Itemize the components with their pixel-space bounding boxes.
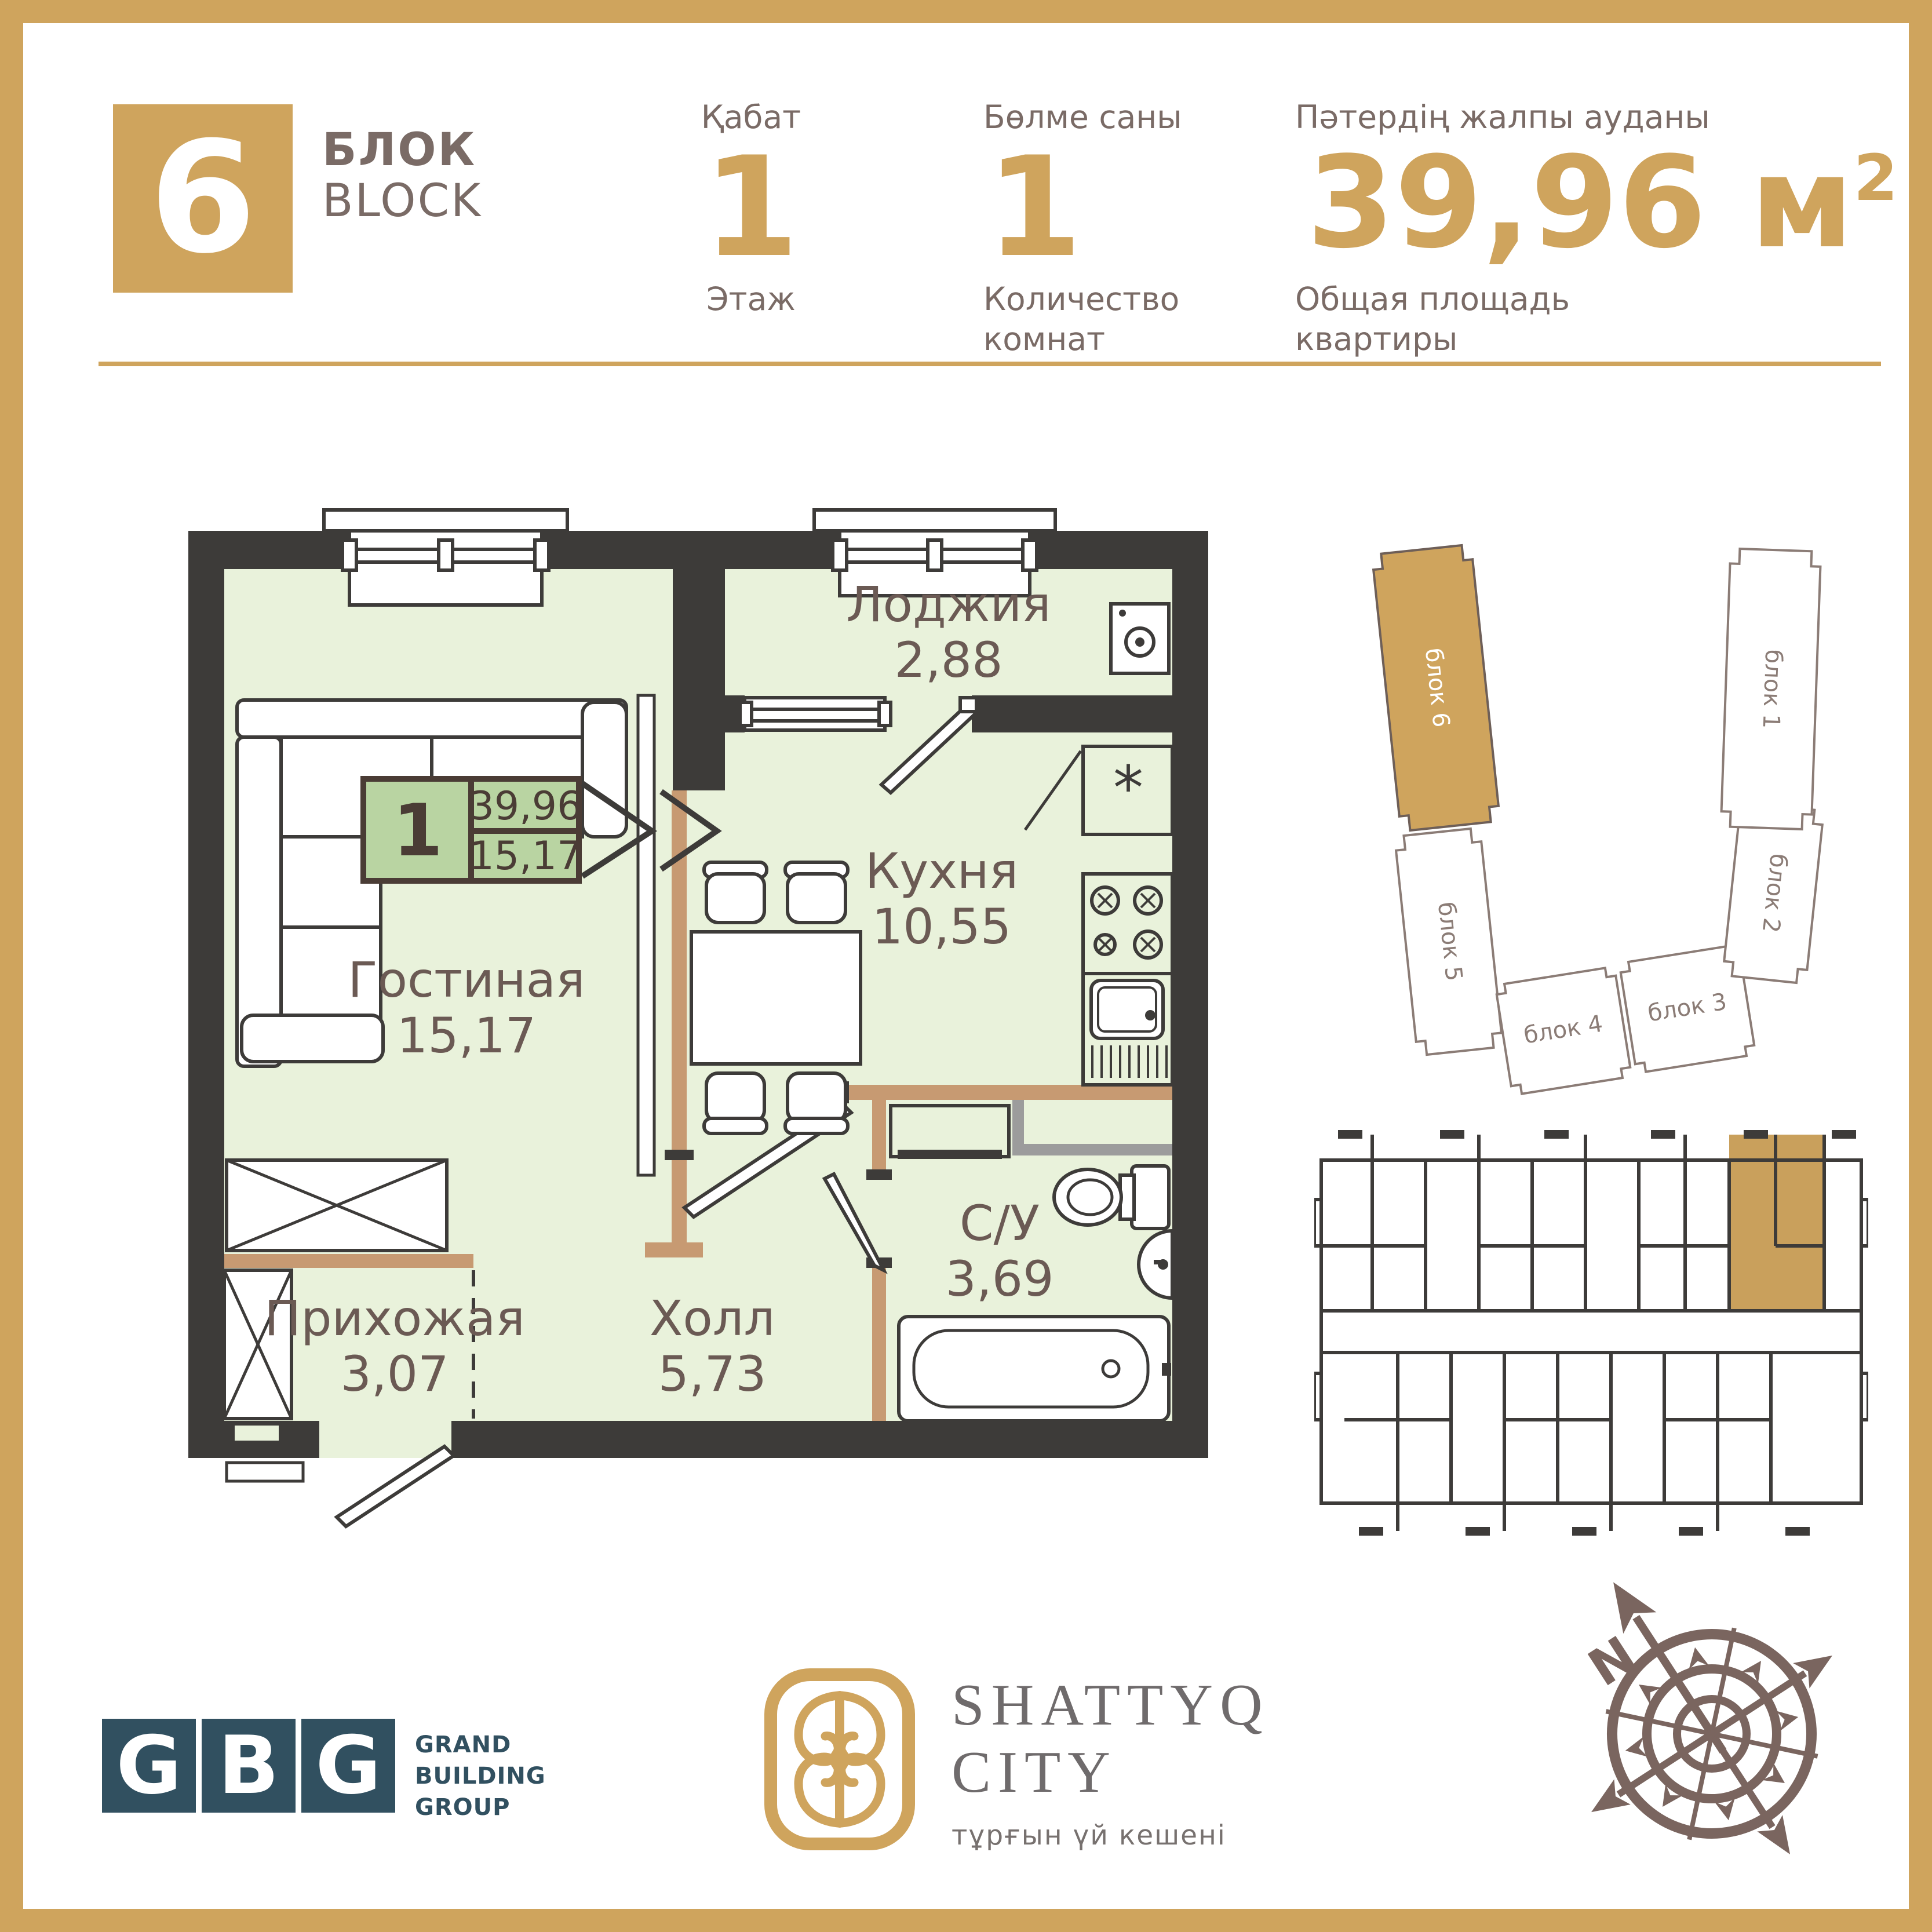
label-living-area: 15,17: [397, 1007, 536, 1064]
apartment-floorplan: *: [188, 505, 1208, 1560]
block-number: 6: [150, 122, 256, 275]
area-number: 39,96 м: [1307, 130, 1854, 276]
shattyq-title-1: SHATTYQ: [952, 1676, 1270, 1735]
siteplan-block-5: блок 5: [1395, 828, 1503, 1055]
area-value: 39,96 м2: [1307, 140, 1898, 267]
entrance-door-leaf: [337, 1446, 454, 1526]
svg-text:блок 1: блок 1: [1758, 649, 1787, 730]
entrance-threshold: [235, 1426, 279, 1441]
rooms-label-ru: Количество комнат: [983, 279, 1233, 359]
fridge-symbol: *: [1113, 753, 1143, 823]
entrance-step: [227, 1463, 303, 1481]
label-hallway: Прихожая: [264, 1290, 525, 1347]
compass-rose: N: [1559, 1530, 1860, 1889]
siteplan: блок 6 блок 5 блок 4 блок 3 блок 2 блок …: [1362, 524, 1895, 1110]
bath-cabinet: [891, 1106, 1009, 1157]
floor-overview-strip: [1314, 1130, 1868, 1536]
washing-machine: [1111, 604, 1169, 673]
living-window: [324, 510, 567, 605]
shattyq-ornament: [764, 1668, 916, 1851]
floor-label-ru: Этаж: [647, 279, 855, 319]
gbg-name: GRAND BUILDING GROUP: [415, 1729, 546, 1823]
block-label-en: BLOCK: [322, 175, 482, 227]
label-bathroom-area: 3,69: [945, 1251, 1054, 1307]
gbg-square-3: G: [301, 1719, 395, 1813]
label-hall: Холл: [650, 1290, 775, 1347]
header-divider: [99, 362, 1881, 366]
label-kitchen: Кухня: [865, 843, 1019, 899]
label-kitchen-area: 10,55: [872, 898, 1011, 955]
brochure-page: 6 БЛОК BLOCK Қабат 1 Этаж Бөлме саны 1 К…: [0, 0, 1932, 1932]
label-bathroom: С/У: [960, 1195, 1040, 1252]
wardrobe-large: [227, 1160, 447, 1251]
siteplan-block-1: блок 1: [1721, 548, 1821, 829]
rooms-value: 1: [986, 139, 1082, 277]
gbg-square-1: G: [102, 1719, 196, 1813]
gbg-logo: G B G: [102, 1719, 395, 1813]
label-hall-area: 5,73: [658, 1346, 766, 1402]
area-label-ru: Общая площадь квартиры: [1295, 279, 1654, 359]
label-living: Гостиная: [348, 952, 585, 1008]
label-loggia-area: 2,88: [894, 632, 1003, 688]
shattyq-title-2: CITY: [952, 1743, 1117, 1802]
block-label-kk: БЛОК: [322, 124, 476, 176]
unit-living-area: 15,17: [469, 833, 582, 879]
shattyq-subtitle: тұрғын үй кешені: [952, 1820, 1226, 1851]
unit-total-area: 39,96: [469, 783, 582, 829]
balcony-door-hinge: [960, 698, 976, 712]
toilet-tank: [1132, 1166, 1169, 1229]
siteplan-block-2: блок 2: [1723, 802, 1824, 983]
living-partition: [638, 695, 654, 1175]
gbg-square-2: B: [202, 1719, 296, 1813]
siteplan-block-6: блок 6: [1372, 544, 1500, 831]
area-sup: 2: [1854, 141, 1898, 215]
balcony-window-band: [740, 698, 891, 730]
siteplan-block-4: блок 4: [1495, 967, 1631, 1095]
strip-walls: [1314, 1130, 1868, 1536]
floor-value: 1: [647, 139, 855, 277]
label-hallway-area: 3,07: [340, 1346, 449, 1402]
label-loggia: Лоджия: [846, 576, 1051, 633]
unit-rooms-count: 1: [393, 789, 443, 873]
block-badge: 6: [113, 104, 293, 293]
compass-north-label: N: [1578, 1625, 1646, 1698]
